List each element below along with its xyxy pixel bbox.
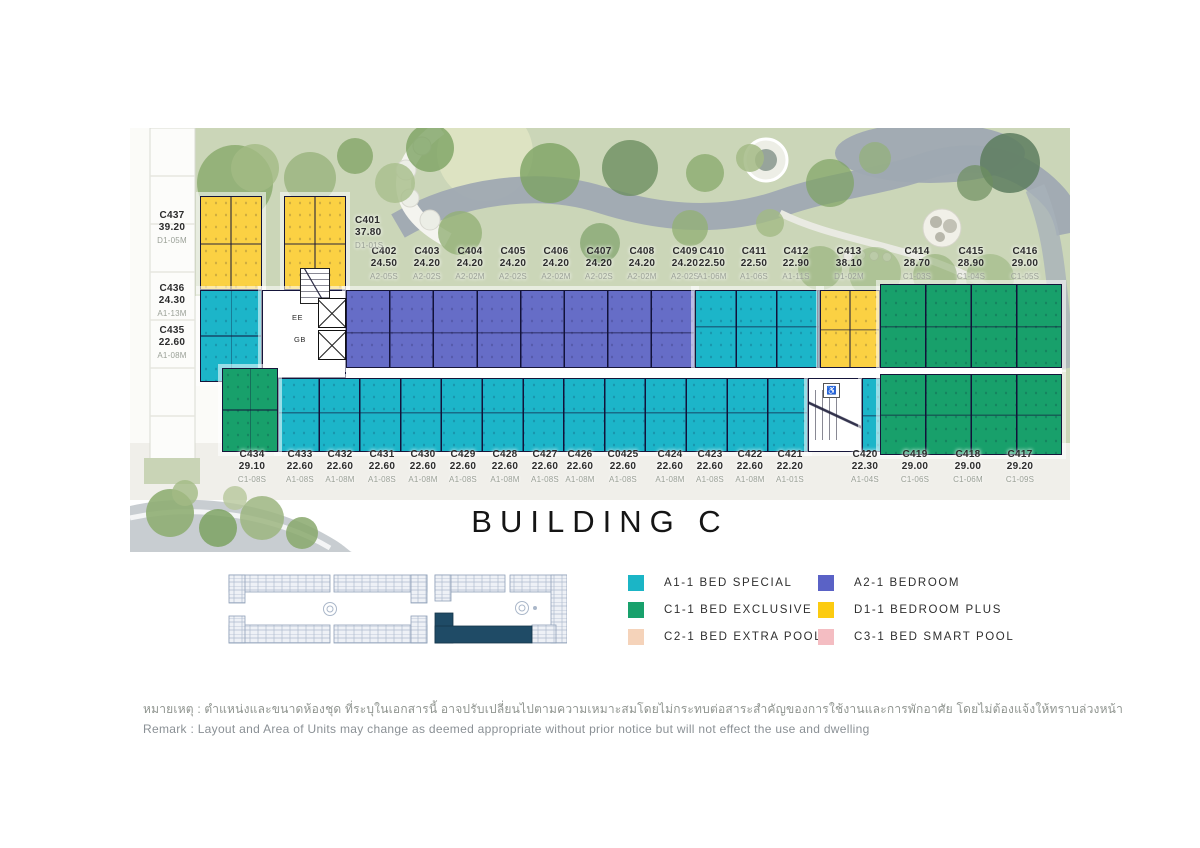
unit-type: C1-08S xyxy=(238,474,266,486)
unit-label-C412: C41222.90A1-11S xyxy=(782,246,809,283)
unit-area: 39.20 xyxy=(157,222,187,234)
unit-type: A1-08S xyxy=(286,474,314,486)
unit-area: 24.20 xyxy=(671,258,699,270)
unit-no: C432 xyxy=(325,449,354,461)
unit-no: C410 xyxy=(697,246,726,258)
unit-label-C403: C40324.20A2-02S xyxy=(413,246,441,283)
unit-type: A1-13M xyxy=(157,308,186,320)
core-label-gb: GB xyxy=(294,335,306,344)
unit-no: C435 xyxy=(157,325,186,337)
unit-type: A1-04S xyxy=(851,474,879,486)
legend-swatch-a1 xyxy=(628,575,644,591)
unit-no: C411 xyxy=(740,246,768,258)
unit-area: 24.20 xyxy=(541,258,570,270)
unit-type: A1-08M xyxy=(490,474,519,486)
unit-no: C0425 xyxy=(608,449,639,461)
unit-no: C416 xyxy=(1011,246,1039,258)
unit-area: 24.50 xyxy=(370,258,398,270)
unit-no: C422 xyxy=(735,449,764,461)
unit-label-C419: C41929.00C1-06S xyxy=(901,449,929,486)
unit-area: 24.20 xyxy=(413,258,441,270)
unit-type: A2-02M xyxy=(627,271,656,283)
unit-area: 28.70 xyxy=(903,258,931,270)
unit-no: C401 xyxy=(355,215,383,227)
unit-area: 24.20 xyxy=(627,258,656,270)
unit-area: 24.20 xyxy=(585,258,613,270)
unit-type: C1-04S xyxy=(957,271,985,283)
unit-area: 38.10 xyxy=(834,258,864,270)
legend-item-c2: C2-1 BED EXTRA POOL xyxy=(628,629,822,645)
unit-type: A2-02S xyxy=(413,271,441,283)
unit-type: C1-03S xyxy=(903,271,931,283)
unit-type: A1-08S xyxy=(696,474,724,486)
unit-no: C404 xyxy=(455,246,484,258)
unit-no: C436 xyxy=(157,283,186,295)
unit-type: A2-02M xyxy=(541,271,570,283)
unit-type: A1-08M xyxy=(735,474,764,486)
unit-block-c1-c434 xyxy=(222,368,278,452)
unit-area: 22.60 xyxy=(325,461,354,473)
unit-area: 22.60 xyxy=(368,461,396,473)
page-title: BUILDING C xyxy=(130,504,1070,540)
legend-label: C3-1 BED SMART POOL xyxy=(854,631,1014,643)
key-plan xyxy=(222,570,567,658)
unit-no: C433 xyxy=(286,449,314,461)
unit-no: C412 xyxy=(782,246,809,258)
legend-label: A1-1 BED SPECIAL xyxy=(664,577,793,589)
unit-block-d1-left-a xyxy=(200,196,262,290)
legend-label: C2-1 BED EXTRA POOL xyxy=(664,631,822,643)
core-label-ee: EE xyxy=(292,313,303,322)
unit-no: C413 xyxy=(834,246,864,258)
unit-label-C417: C41729.20C1-09S xyxy=(1006,449,1034,486)
unit-area: 22.60 xyxy=(735,461,764,473)
unit-label-C415: C41528.90C1-04S xyxy=(957,246,985,283)
unit-no: C418 xyxy=(953,449,983,461)
unit-no: C405 xyxy=(499,246,527,258)
unit-no: C434 xyxy=(238,449,266,461)
unit-area: 22.60 xyxy=(696,461,724,473)
legend-item-a2: A2-1 BEDROOM xyxy=(818,575,960,591)
unit-type: A1-06M xyxy=(697,271,726,283)
unit-no: C403 xyxy=(413,246,441,258)
elevator-shaft-icon xyxy=(318,298,346,328)
unit-area: 24.30 xyxy=(157,295,186,307)
unit-area: 29.10 xyxy=(238,461,266,473)
unit-label-C420: C42022.30A1-04S xyxy=(851,449,879,486)
unit-label-C430: C43022.60A1-08M xyxy=(408,449,437,486)
unit-area: 29.00 xyxy=(1011,258,1039,270)
unit-area: 22.60 xyxy=(531,461,559,473)
unit-no: C421 xyxy=(776,449,804,461)
legend-label: D1-1 BEDROOM PLUS xyxy=(854,604,1002,616)
unit-area: 22.60 xyxy=(565,461,594,473)
unit-no: C429 xyxy=(449,449,477,461)
unit-no: C409 xyxy=(671,246,699,258)
unit-area: 22.60 xyxy=(655,461,684,473)
unit-area: 22.50 xyxy=(740,258,768,270)
floor-plan-page: EE GB ♿ C40224.50A2-05SC40324.20A2-02SC4… xyxy=(0,0,1200,848)
unit-no: C423 xyxy=(696,449,724,461)
unit-area: 22.60 xyxy=(490,461,519,473)
unit-label-C422: C42222.60A1-08M xyxy=(735,449,764,486)
unit-no: C420 xyxy=(851,449,879,461)
unit-type: A1-06S xyxy=(740,271,768,283)
unit-no: C428 xyxy=(490,449,519,461)
legend-swatch-c2 xyxy=(628,629,644,645)
unit-type: A1-08M xyxy=(157,350,186,362)
unit-block-c1-top-right xyxy=(880,284,1062,368)
unit-type: A1-08M xyxy=(565,474,594,486)
core-gap xyxy=(0,0,22,94)
unit-block-c1-bottom-right xyxy=(880,374,1062,455)
unit-area: 22.20 xyxy=(776,461,804,473)
unit-label-C432: C43222.60A1-08M xyxy=(325,449,354,486)
legend-swatch-c3 xyxy=(818,629,834,645)
unit-label-C0425: C042522.60A1-08S xyxy=(608,449,639,486)
unit-label-C418: C41829.00C1-06M xyxy=(953,449,983,486)
unit-block-a1-bottom xyxy=(278,378,808,452)
unit-type: A1-08M xyxy=(408,474,437,486)
unit-area: 22.60 xyxy=(286,461,314,473)
elevator-shaft-icon xyxy=(318,330,346,360)
unit-label-C409: C40924.20A2-02S xyxy=(671,246,699,283)
legend-swatch-c1 xyxy=(628,602,644,618)
legend-swatch-a2 xyxy=(818,575,834,591)
unit-area: 22.30 xyxy=(851,461,879,473)
remark-english: Remark : Layout and Area of Units may ch… xyxy=(143,722,870,736)
unit-label-C436: C43624.30A1-13M xyxy=(157,283,186,320)
unit-area: 22.60 xyxy=(157,337,186,349)
unit-no: C419 xyxy=(901,449,929,461)
unit-type: A1-08M xyxy=(325,474,354,486)
unit-label-C434: C43429.10C1-08S xyxy=(238,449,266,486)
unit-area: 22.50 xyxy=(697,258,726,270)
unit-type: A1-01S xyxy=(776,474,804,486)
unit-type: D1-01S xyxy=(355,240,383,252)
unit-area: 29.00 xyxy=(953,461,983,473)
unit-type: A1-08S xyxy=(531,474,559,486)
unit-area: 22.60 xyxy=(449,461,477,473)
unit-no: C427 xyxy=(531,449,559,461)
unit-label-C421: C42122.20A1-01S xyxy=(776,449,804,486)
unit-type: A2-02S xyxy=(671,271,699,283)
unit-label-C414: C41428.70C1-03S xyxy=(903,246,931,283)
legend-label: A2-1 BEDROOM xyxy=(854,577,960,589)
unit-no: C426 xyxy=(565,449,594,461)
unit-area: 29.00 xyxy=(901,461,929,473)
unit-no: C415 xyxy=(957,246,985,258)
unit-label-C406: C40624.20A2-02M xyxy=(541,246,570,283)
unit-label-C426: C42622.60A1-08M xyxy=(565,449,594,486)
unit-type: A2-05S xyxy=(370,271,398,283)
unit-block-d1-c413 xyxy=(820,290,880,368)
unit-block-a2-top xyxy=(346,290,695,368)
unit-label-C405: C40524.20A2-02S xyxy=(499,246,527,283)
unit-type: A2-02S xyxy=(499,271,527,283)
remark-thai: หมายเหตุ : ตำแหน่งและขนาดห้องชุด ที่ระบุ… xyxy=(143,700,1123,719)
unit-no: C431 xyxy=(368,449,396,461)
unit-no: C417 xyxy=(1006,449,1034,461)
unit-type: A1-11S xyxy=(782,271,809,283)
unit-type: A1-08S xyxy=(449,474,477,486)
legend-item-d1: D1-1 BEDROOM PLUS xyxy=(818,602,1002,618)
unit-no: C408 xyxy=(627,246,656,258)
unit-area: 22.60 xyxy=(608,461,639,473)
legend-swatch-d1 xyxy=(818,602,834,618)
unit-no: C406 xyxy=(541,246,570,258)
unit-label-C435: C43522.60A1-08M xyxy=(157,325,186,362)
unit-type: A1-08S xyxy=(368,474,396,486)
unit-no: C424 xyxy=(655,449,684,461)
unit-label-C408: C40824.20A2-02M xyxy=(627,246,656,283)
unit-label-C429: C42922.60A1-08S xyxy=(449,449,477,486)
unit-label-C431: C43122.60A1-08S xyxy=(368,449,396,486)
unit-label-C407: C40724.20A2-02S xyxy=(585,246,613,283)
legend-item-c3: C3-1 BED SMART POOL xyxy=(818,629,1014,645)
unit-type: A1-08M xyxy=(655,474,684,486)
unit-type: A1-08S xyxy=(608,474,639,486)
unit-label-C416: C41629.00C1-05S xyxy=(1011,246,1039,283)
unit-block-a1-top xyxy=(695,290,820,368)
legend-item-c1: C1-1 BED EXCLUSIVE xyxy=(628,602,812,618)
unit-label-C428: C42822.60A1-08M xyxy=(490,449,519,486)
unit-area: 37.80 xyxy=(355,227,383,239)
unit-no: C414 xyxy=(903,246,931,258)
unit-label-C410: C41022.50A1-06M xyxy=(697,246,726,283)
key-plan-highlight xyxy=(435,613,532,643)
unit-type: A2-02M xyxy=(455,271,484,283)
unit-label-C401: C40137.80D1-01S xyxy=(355,215,383,252)
unit-type: D1-02M xyxy=(834,271,864,283)
unit-type: C1-05S xyxy=(1011,271,1039,283)
unit-no: C407 xyxy=(585,246,613,258)
unit-type: A2-02S xyxy=(585,271,613,283)
unit-area: 22.60 xyxy=(408,461,437,473)
legend-label: C1-1 BED EXCLUSIVE xyxy=(664,604,812,616)
unit-label-C423: C42322.60A1-08S xyxy=(696,449,724,486)
unit-label-C424: C42422.60A1-08M xyxy=(655,449,684,486)
unit-no: C437 xyxy=(157,210,187,222)
unit-area: 24.20 xyxy=(499,258,527,270)
unit-label-C433: C43322.60A1-08S xyxy=(286,449,314,486)
unit-type: C1-06S xyxy=(901,474,929,486)
unit-type: C1-09S xyxy=(1006,474,1034,486)
unit-type: D1-05M xyxy=(157,235,187,247)
unit-label-C404: C40424.20A2-02M xyxy=(455,246,484,283)
accessibility-icon: ♿ xyxy=(823,383,840,398)
unit-area: 29.20 xyxy=(1006,461,1034,473)
unit-label-C411: C41122.50A1-06S xyxy=(740,246,768,283)
unit-area: 24.20 xyxy=(455,258,484,270)
unit-type: C1-06M xyxy=(953,474,983,486)
unit-no: C430 xyxy=(408,449,437,461)
unit-label-C413: C41338.10D1-02M xyxy=(834,246,864,283)
unit-area: 22.90 xyxy=(782,258,809,270)
unit-label-C427: C42722.60A1-08S xyxy=(531,449,559,486)
unit-label-C437: C43739.20D1-05M xyxy=(157,210,187,247)
unit-area: 28.90 xyxy=(957,258,985,270)
legend-item-a1: A1-1 BED SPECIAL xyxy=(628,575,793,591)
